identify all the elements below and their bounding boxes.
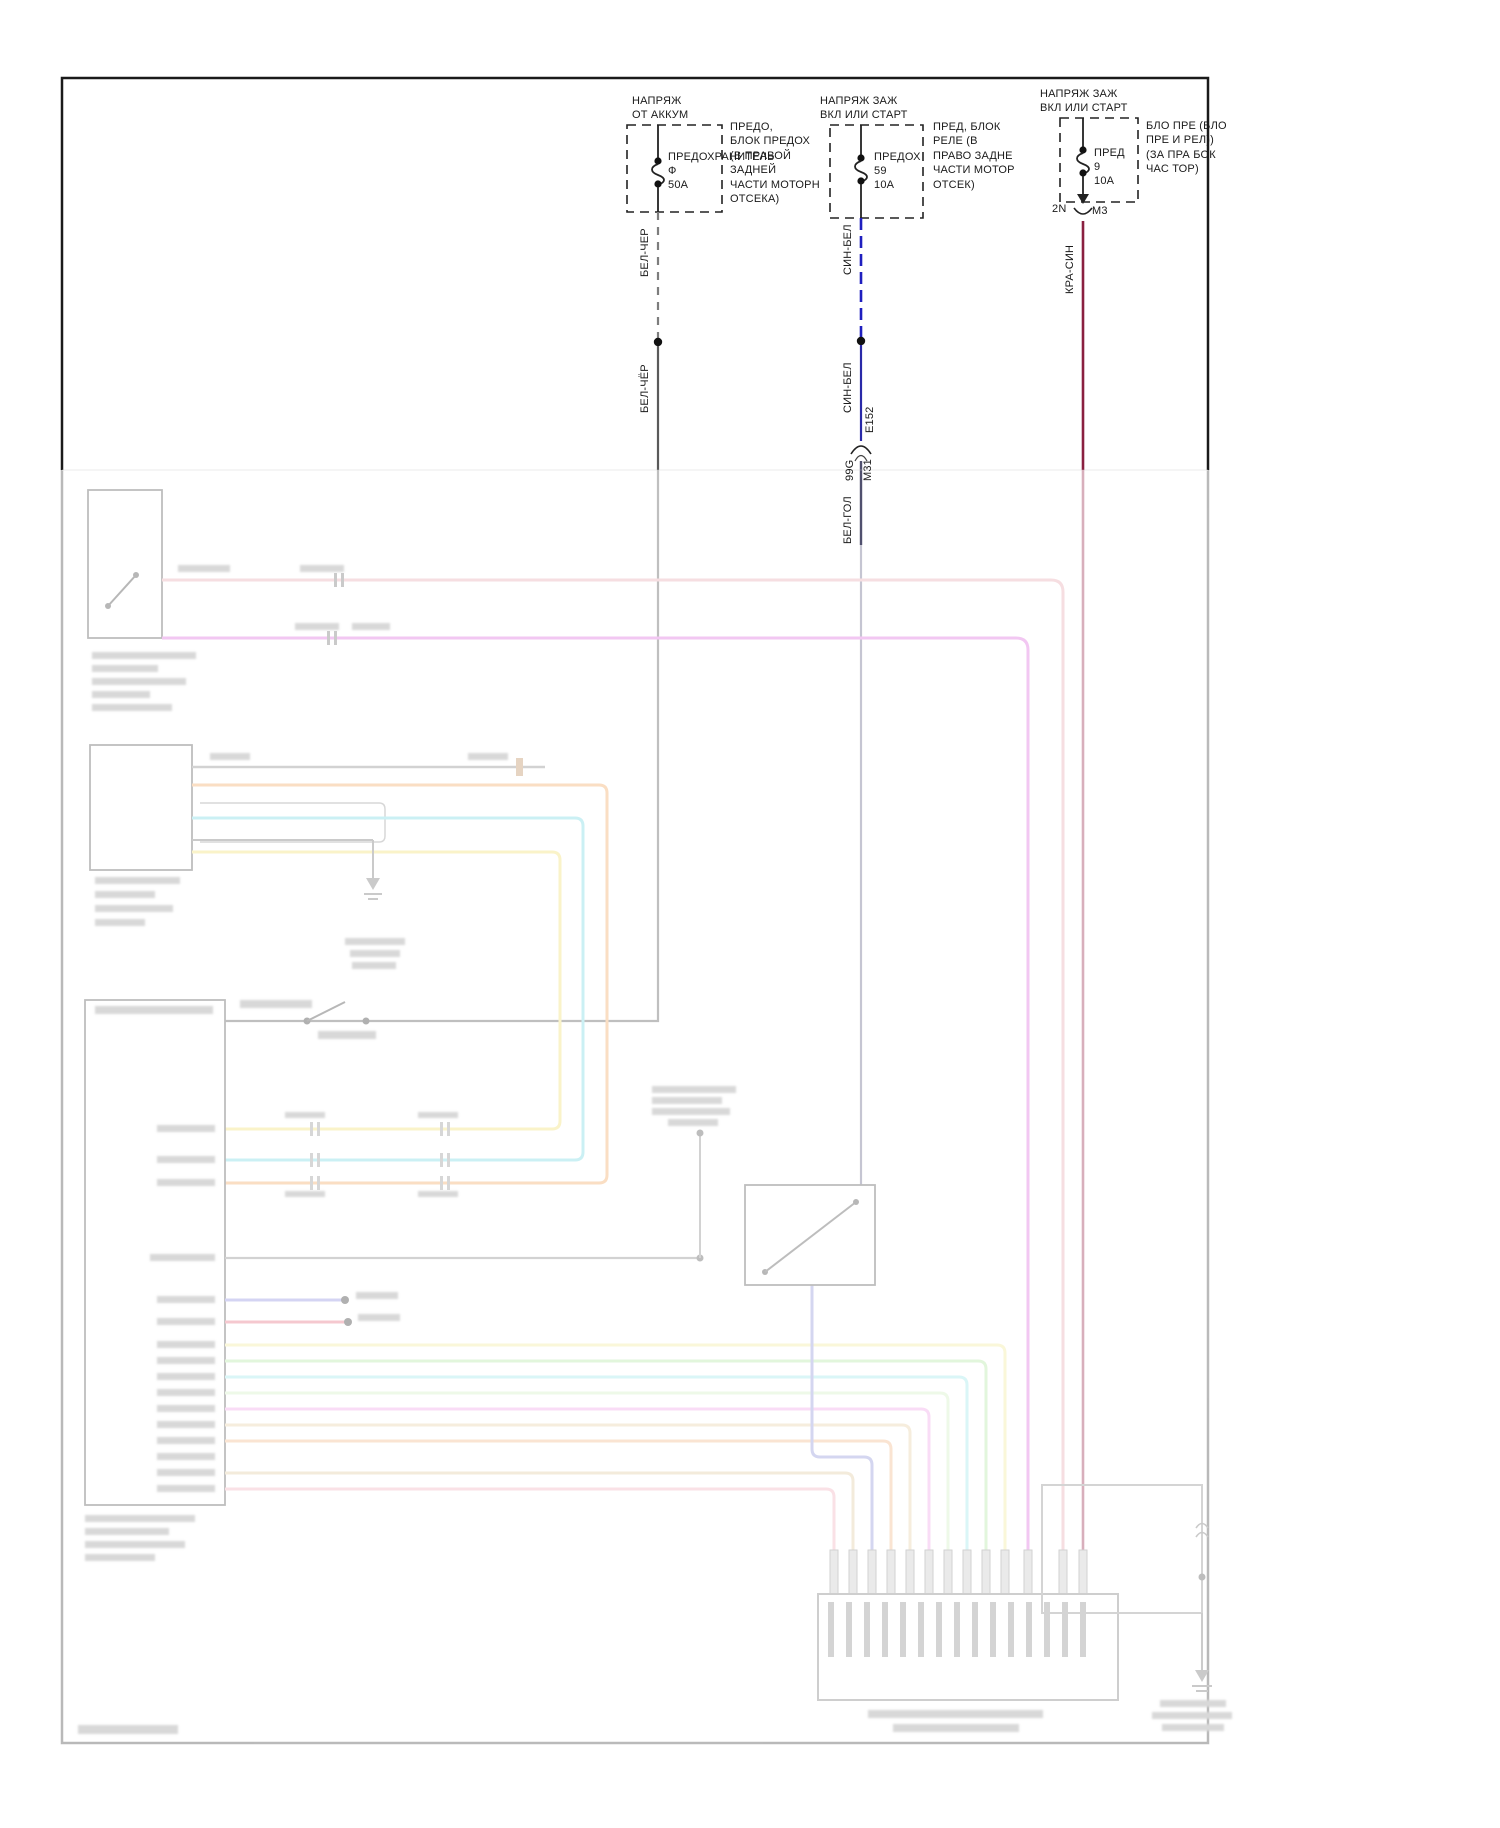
feed2-fuse-id: 59 [874, 165, 887, 179]
feed3-fuse-name: ПРЕД [1094, 147, 1125, 161]
connector-label-99g: 99G [844, 460, 856, 481]
wire-bundle [225, 1285, 1005, 1552]
wire-orange [192, 785, 607, 1183]
junction-dot [697, 1130, 704, 1137]
page-border-top [62, 78, 1208, 470]
feed1-title-line2: ОТ АККУМ [632, 109, 688, 123]
fuse-icon [855, 125, 867, 218]
feed3-title-line2: ВКЛ ИЛИ СТАРТ [1040, 102, 1128, 116]
wire-cyan [192, 818, 583, 1160]
feed2-location-line: ОТСЕК) [933, 179, 975, 193]
wire-label-bel-cher-upper: БЕЛ-ЧЕР [639, 228, 651, 277]
feed2-title-line2: ВКЛ ИЛИ СТАРТ [820, 109, 908, 123]
wiring-diagram-canvas [0, 0, 1500, 1828]
feed3-title-line1: НАПРЯЖ ЗАЖ [1040, 88, 1117, 102]
footer-note [78, 1725, 178, 1734]
feed2-title-line1: НАПРЯЖ ЗАЖ [820, 95, 897, 109]
component-2 [90, 745, 192, 870]
feed3-fuse-rating: 10A [1094, 175, 1114, 189]
feed1-fuse-id: Ф [668, 165, 677, 179]
feed1-fuse-rating: 50A [668, 179, 688, 193]
feed1-location-line: ПРЕДО, [730, 121, 773, 135]
feed2-fuse-name: ПРЕДОХ [874, 151, 921, 165]
inline-connector-icon [516, 758, 523, 776]
splice-label-e152: E152 [864, 407, 876, 434]
wire-sin-bel [851, 218, 871, 545]
junction-dot [344, 1318, 352, 1326]
feed3-fuse-id: 9 [1094, 161, 1100, 175]
wire-bel-cher [654, 212, 662, 470]
feed3-location-line: БЛО ПРЕ (БЛО [1146, 120, 1227, 134]
feed3-location-line: ЧАС ТОР) [1146, 163, 1199, 177]
feed1-location-line: БЛОК ПРЕДОХ [730, 135, 810, 149]
junction-dot [857, 337, 865, 345]
feed3-location-line: ПРЕ И РЕЛ)) [1146, 134, 1214, 148]
feed2-location-line: ПРЕД, БЛОК [933, 121, 1001, 135]
connector-label-m3: M3 [1092, 205, 1108, 219]
connector-icon [1074, 208, 1092, 214]
wire-label-bel-cher-lower: БЕЛ-ЧЁР [639, 364, 651, 413]
shield-loop [200, 803, 385, 842]
component-switch-2 [745, 1185, 875, 1285]
page-border-bottom [62, 470, 1208, 1743]
wire-label-kra-sin: КРА-СИН [1064, 245, 1076, 294]
feed1-location-line: (В ПРАВОЙ [730, 150, 791, 164]
connector-label-2n: 2N [1052, 203, 1066, 217]
feed2-location-line: РЕЛЕ (В [933, 135, 978, 149]
feed1-location-line: ЗАДНЕЙ [730, 164, 776, 178]
wire-bel-cher-faded [225, 470, 658, 1021]
feed2-fuse-rating: 10A [874, 179, 894, 193]
wire-label-bel-gol: БЕЛ-ГОЛ [842, 496, 854, 544]
component-switch-1 [88, 490, 162, 638]
junction-dot [654, 338, 662, 346]
feed1-location-line: ОТСЕКА) [730, 193, 779, 207]
fuse-icon [652, 125, 664, 212]
junction-dot [341, 1296, 349, 1304]
inline-connector-icon [310, 1122, 450, 1190]
faded-circuitry [62, 470, 1232, 1743]
connector-label-m31: M31 [862, 459, 874, 481]
feed1-location-line: ЧАСТИ МОТОРН [730, 179, 820, 193]
bottom-connector [818, 1550, 1118, 1732]
feed2-location-line: ПРАВО ЗАДНЕ [933, 150, 1013, 164]
component-module [85, 1000, 225, 1505]
feed1-title-line1: НАПРЯЖ [632, 95, 681, 109]
feed2-location-line: ЧАСТИ МОТОР [933, 164, 1015, 178]
feed3-location-line: (ЗА ПРА БОК [1146, 149, 1216, 163]
ground-icon [364, 840, 382, 899]
wire-label-sin-bel-lower: СИН-БЕЛ [842, 362, 854, 413]
wiring-diagram-page: НАПРЯЖ ОТ АККУМ ПРЕДОХРАНИТЕЛЬ Ф 50A ПРЕ… [0, 0, 1500, 1828]
fuse-icon [1077, 118, 1089, 204]
wire-label-sin-bel-upper: СИН-БЕЛ [842, 224, 854, 275]
junction-dot [1199, 1574, 1206, 1581]
wire-magenta [162, 638, 1028, 1552]
